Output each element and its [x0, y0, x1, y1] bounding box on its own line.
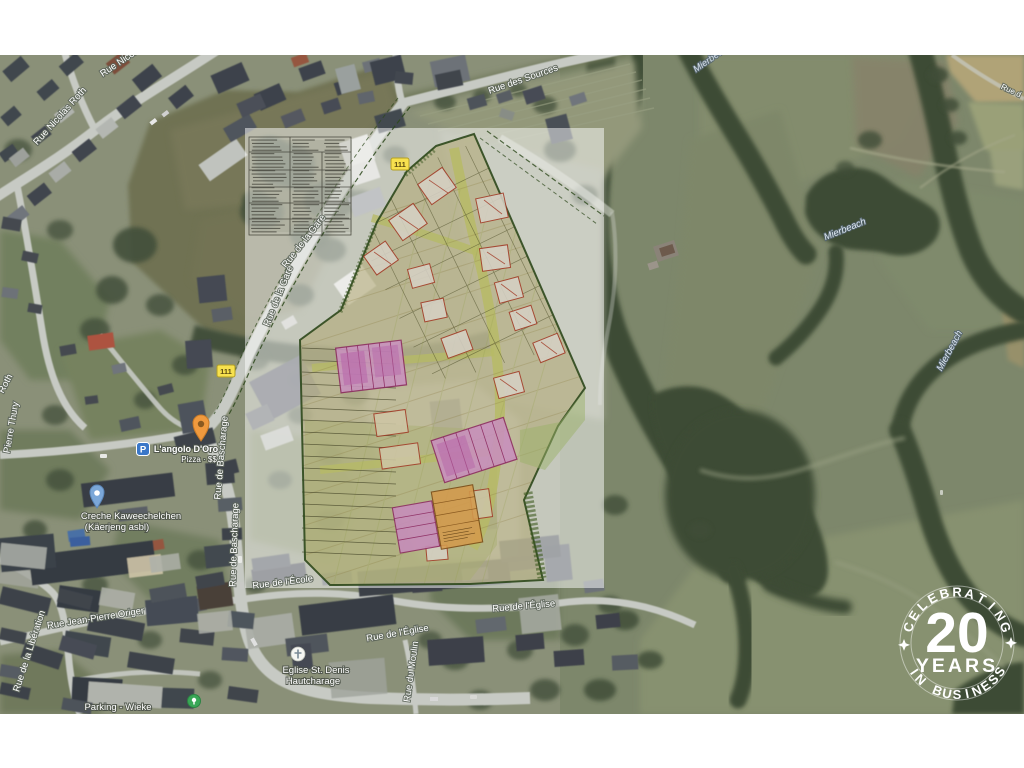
svg-text:111: 111: [220, 367, 232, 376]
svg-text:L'angolo D'Oro: L'angolo D'Oro: [154, 444, 219, 454]
svg-text:YEARS: YEARS: [916, 655, 998, 677]
svg-text:111: 111: [394, 160, 406, 169]
svg-text:R: R: [952, 585, 962, 600]
svg-text:Parking - Wieke: Parking - Wieke: [84, 702, 151, 713]
svg-text:S: S: [953, 687, 962, 702]
svg-text:P: P: [140, 445, 147, 456]
svg-text:Pizza · $$: Pizza · $$: [181, 455, 217, 464]
svg-text:(Käerjeng asbl): (Käerjeng asbl): [85, 522, 149, 533]
svg-text:Creche Kaweechelchen: Creche Kaweechelchen: [81, 511, 181, 522]
svg-text:Hautcharage: Hautcharage: [286, 676, 340, 687]
svg-text:Eglise St. Denis: Eglise St. Denis: [282, 665, 349, 676]
